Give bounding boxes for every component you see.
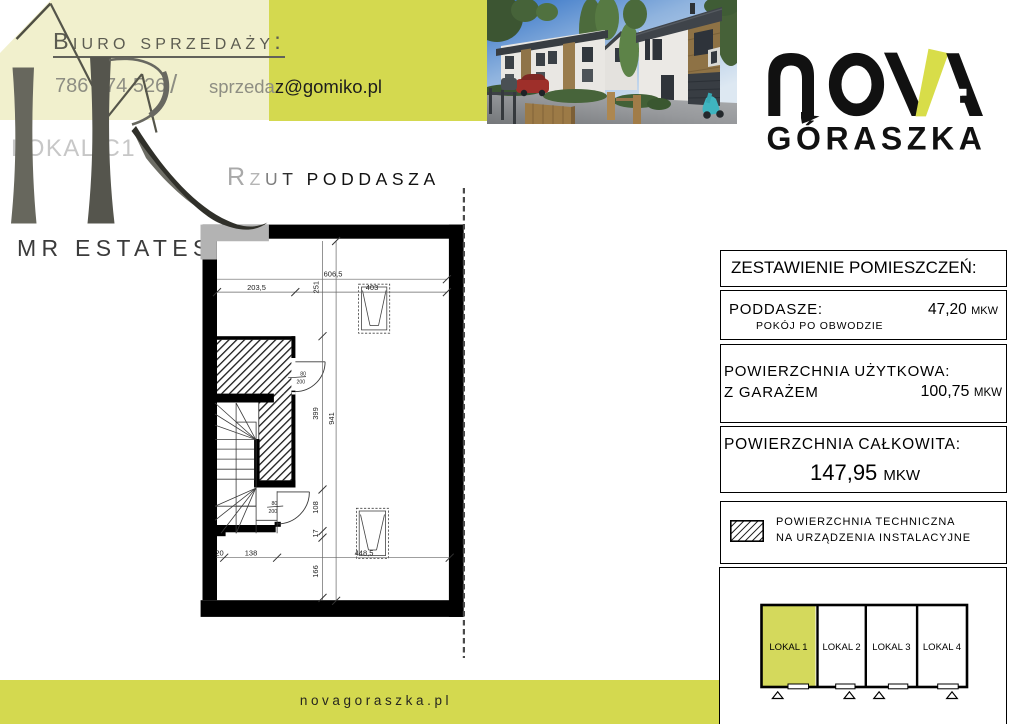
svg-text:17: 17 bbox=[311, 529, 320, 537]
svg-text:LOKAL 2: LOKAL 2 bbox=[822, 642, 860, 653]
svg-text:LOKAL 3: LOKAL 3 bbox=[872, 642, 910, 653]
svg-text:166: 166 bbox=[311, 565, 320, 578]
svg-text:448,5: 448,5 bbox=[355, 548, 374, 557]
svg-text:LOKAL 4: LOKAL 4 bbox=[923, 642, 961, 653]
svg-text:200: 200 bbox=[297, 380, 306, 386]
svg-text:251: 251 bbox=[312, 281, 321, 294]
svg-text:138: 138 bbox=[245, 548, 258, 557]
svg-text:80: 80 bbox=[272, 501, 278, 507]
svg-text:203,5: 203,5 bbox=[247, 283, 266, 292]
svg-text:399: 399 bbox=[311, 407, 320, 420]
svg-text:LOKAL 1: LOKAL 1 bbox=[769, 642, 807, 653]
svg-text:GÓRASZKA: GÓRASZKA bbox=[767, 121, 987, 157]
svg-text:403: 403 bbox=[366, 283, 379, 292]
svg-text:941: 941 bbox=[327, 412, 336, 425]
svg-text:606,5: 606,5 bbox=[324, 270, 343, 279]
svg-text:200: 200 bbox=[269, 509, 278, 515]
svg-text:20: 20 bbox=[215, 548, 223, 557]
svg-text:108: 108 bbox=[311, 501, 320, 514]
